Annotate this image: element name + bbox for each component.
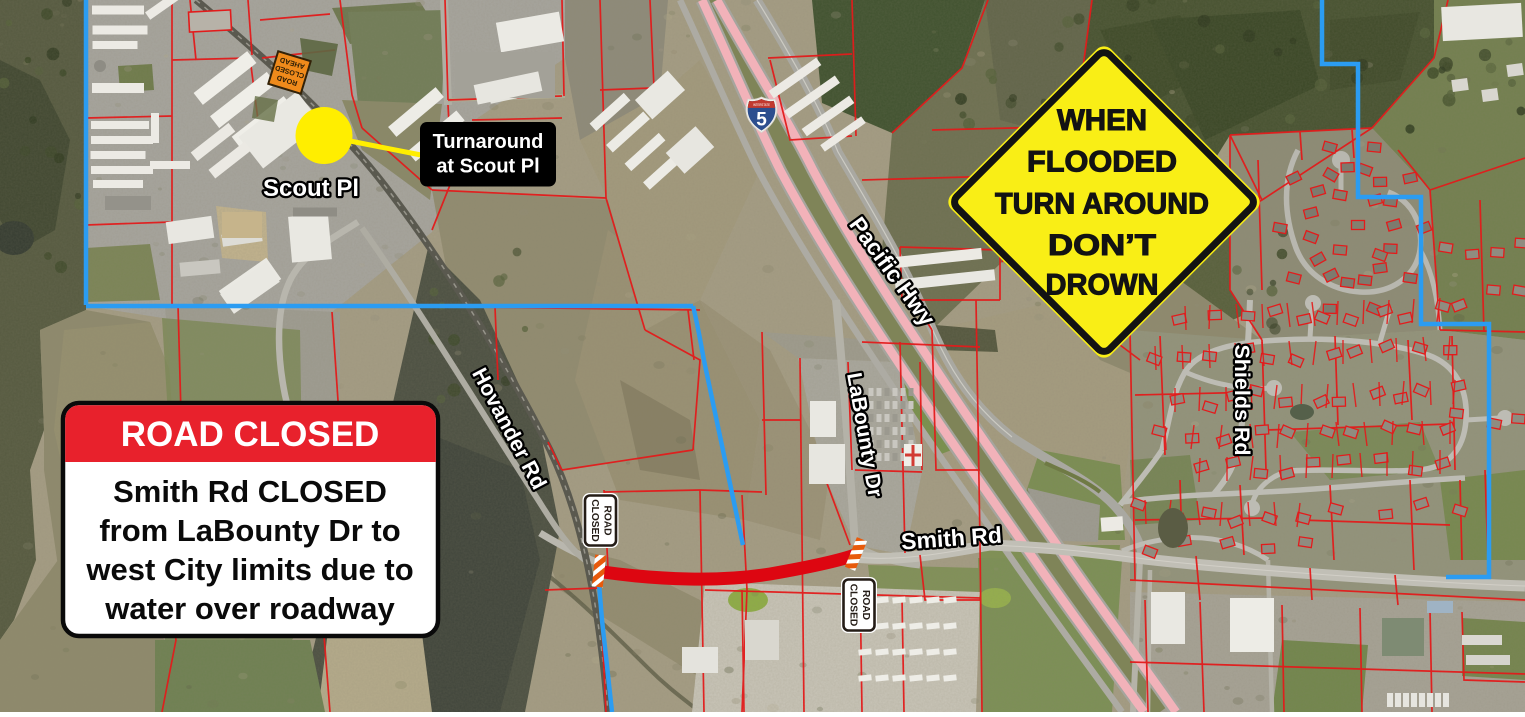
svg-text:TURN AROUND: TURN AROUND [995, 188, 1209, 221]
svg-text:ROAD: ROAD [601, 506, 612, 536]
svg-text:Shields Rd: Shields Rd [1230, 344, 1254, 455]
svg-text:WHEN: WHEN [1057, 104, 1147, 137]
svg-text:5: 5 [756, 110, 767, 131]
svg-text:at Scout Pl: at Scout Pl [436, 156, 539, 178]
svg-text:INTERSTATE: INTERSTATE [753, 103, 771, 107]
svg-text:CLOSED: CLOSED [847, 584, 858, 626]
svg-text:Smith Rd CLOSED: Smith Rd CLOSED [113, 474, 387, 509]
svg-text:CLOSED: CLOSED [589, 499, 600, 541]
svg-text:DON’T: DON’T [1048, 229, 1156, 262]
svg-text:Turnaround: Turnaround [433, 131, 544, 153]
svg-text:ROAD: ROAD [860, 590, 871, 620]
svg-text:FLOODED: FLOODED [1027, 146, 1177, 179]
svg-text:ROAD CLOSED: ROAD CLOSED [121, 415, 380, 454]
svg-text:Scout Pl: Scout Pl [263, 175, 359, 202]
svg-text:west City limits due to: west City limits due to [85, 552, 413, 587]
svg-text:DROWN: DROWN [1046, 269, 1159, 302]
svg-text:from LaBounty Dr to: from LaBounty Dr to [99, 513, 400, 548]
svg-text:water over roadway: water over roadway [104, 591, 395, 626]
